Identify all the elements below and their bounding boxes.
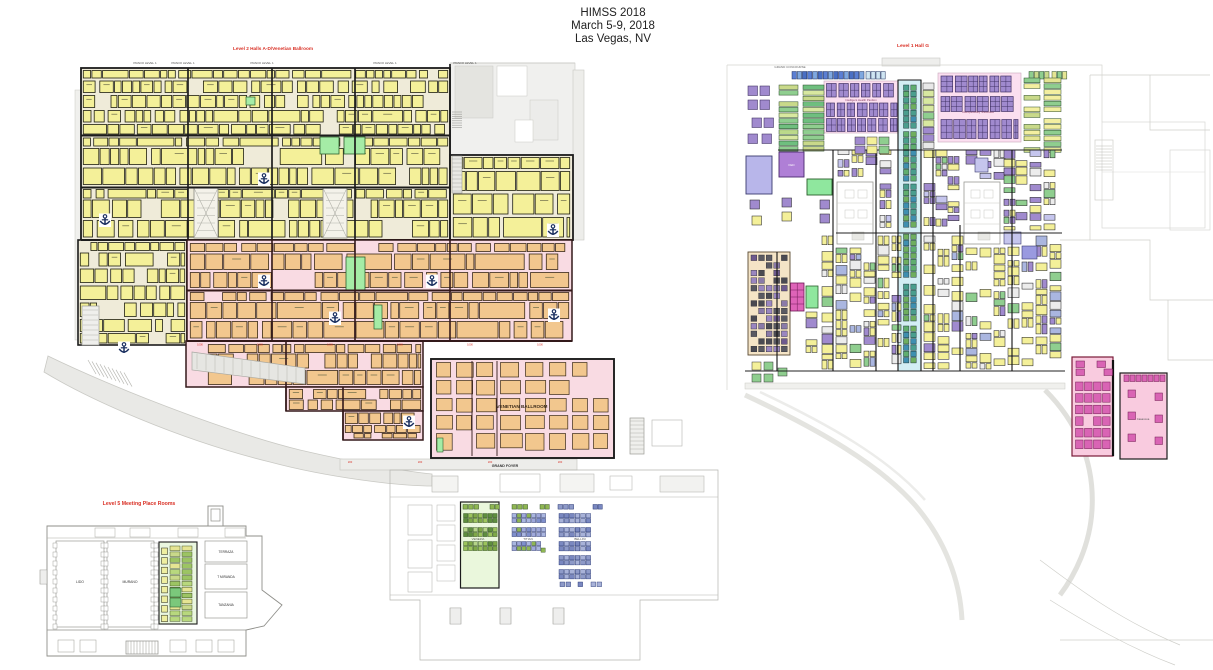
svg-text:Interoperability Showcase: Interoperability Showcase bbox=[962, 110, 994, 114]
svg-text:1000: 1000 bbox=[327, 343, 333, 347]
svg-text:200: 200 bbox=[488, 460, 493, 464]
svg-text:VENETIAN BALLROOM: VENETIAN BALLROOM bbox=[496, 404, 547, 409]
svg-text:1000: 1000 bbox=[537, 343, 543, 347]
svg-text:MURANO: MURANO bbox=[122, 580, 137, 584]
svg-text:TERRAZA: TERRAZA bbox=[219, 550, 235, 554]
svg-text:200: 200 bbox=[418, 460, 423, 464]
svg-text:200: 200 bbox=[348, 460, 353, 464]
svg-text:200: 200 bbox=[558, 460, 563, 464]
svg-text:PRADO LEVEL 1: PRADO LEVEL 1 bbox=[453, 61, 477, 65]
svg-text:TANZANIA: TANZANIA bbox=[218, 603, 234, 607]
svg-text:TITIAN: TITIAN bbox=[523, 537, 533, 541]
svg-text:Level 5 Meeting Place Rooms: Level 5 Meeting Place Rooms bbox=[103, 501, 176, 507]
svg-text:T MIRANDA: T MIRANDA bbox=[217, 575, 235, 579]
svg-text:1000: 1000 bbox=[257, 343, 263, 347]
svg-text:Casanova: Casanova bbox=[1137, 417, 1150, 421]
svg-text:PRADO LEVEL 1: PRADO LEVEL 1 bbox=[373, 61, 397, 65]
svg-text:GRAND CONCOURSE: GRAND CONCOURSE bbox=[774, 65, 805, 69]
svg-text:BELLINI: BELLINI bbox=[574, 537, 585, 541]
svg-text:1000: 1000 bbox=[467, 343, 473, 347]
svg-text:Level 1 Hall G: Level 1 Hall G bbox=[897, 43, 929, 49]
svg-text:Las Vegas, NV: Las Vegas, NV bbox=[575, 33, 651, 45]
svg-text:PRADO LEVEL 1: PRADO LEVEL 1 bbox=[133, 61, 157, 65]
svg-text:March 5-9, 2018: March 5-9, 2018 bbox=[571, 20, 655, 32]
svg-text:1000: 1000 bbox=[197, 343, 203, 347]
svg-text:PRADO LEVEL 1: PRADO LEVEL 1 bbox=[250, 61, 274, 65]
svg-text:GRAND FOYER: GRAND FOYER bbox=[492, 464, 519, 468]
svg-text:PRADO LEVEL 1: PRADO LEVEL 1 bbox=[171, 61, 195, 65]
svg-text:Level 2 Halls A-D/Venetian Bal: Level 2 Halls A-D/Venetian Ballroom bbox=[233, 46, 313, 51]
svg-text:HIMSS 2018: HIMSS 2018 bbox=[580, 7, 645, 19]
svg-text:Intelligent Health Pavilion: Intelligent Health Pavilion bbox=[845, 98, 877, 102]
svg-text:FED: FED bbox=[789, 163, 796, 167]
svg-text:VENEZIA: VENEZIA bbox=[472, 537, 485, 541]
svg-text:1000: 1000 bbox=[397, 343, 403, 347]
svg-text:LIDO: LIDO bbox=[76, 580, 84, 584]
